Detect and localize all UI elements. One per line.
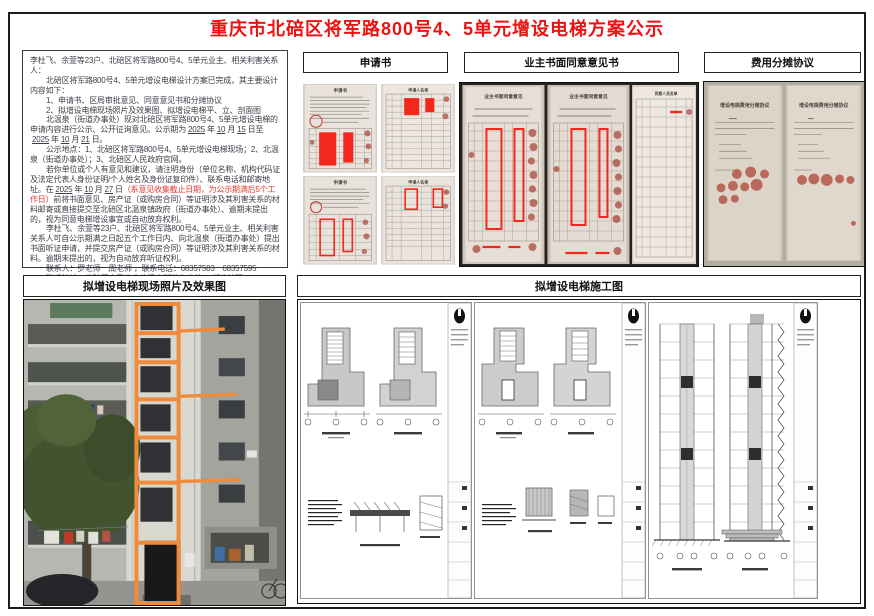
building-photo	[24, 300, 285, 605]
date-value: 2025	[188, 125, 205, 134]
notice-contact-person: 联系人：罗老师 周老师 ，联系电话：68357583 68357595	[30, 264, 280, 274]
date-value: 27	[105, 185, 114, 194]
date-value: 2025	[55, 185, 72, 194]
drawings-panel	[297, 299, 861, 604]
section-header-drawings: 拟增设电梯施工图	[297, 275, 861, 297]
drawing-sheet-plans-1	[300, 302, 472, 599]
doc-title-text: 申请书	[333, 179, 347, 186]
stairwell-windows	[140, 306, 172, 522]
right-building	[201, 300, 285, 593]
notice-paragraph-period: 北温泉（街道办事处）现对北碚区将军路800号4、5单元增设电梯的申请内容进行公示…	[30, 115, 280, 145]
redaction-box	[343, 132, 353, 162]
date-value: 21	[81, 135, 90, 144]
date-value: 10	[84, 185, 93, 194]
application-doc-photo: 申请书	[303, 176, 377, 265]
drawing-sheet-elevations	[648, 302, 818, 599]
notice-paragraph-locations: 公示地点：1、北碚区将军路800号4、5单元增设电梯现场；2、北温泉（街道办事处…	[30, 145, 280, 165]
notice-text-panel: 李杜飞、余萱等23户、北碚区将军路800号4、5单元业主、相关利害关系人： 北碚…	[22, 50, 288, 268]
doc-title-text: 增设电梯费用分摊协议	[720, 102, 769, 109]
date-value: 10	[217, 125, 226, 134]
site-photo-panel	[23, 299, 286, 606]
section-header-cost: 费用分摊协议	[704, 52, 861, 73]
section-header-site-photo: 拟增设电梯现场照片及效果图	[23, 275, 286, 297]
redaction-box	[425, 98, 434, 112]
entrance-doorway	[144, 541, 180, 601]
page-title: 重庆市北碚区将军路800号4、5单元增设电梯方案公示	[0, 15, 874, 41]
fingerprint	[686, 109, 692, 115]
application-photos-grid: 申请书	[303, 84, 455, 265]
title-block	[448, 303, 471, 598]
consent-list-photo: 同意人员名单	[632, 85, 696, 264]
notice-page: 重庆市北碚区将军路800号4、5单元增设电梯方案公示 李杜飞、余萱等23户、北碚…	[0, 0, 874, 616]
drawing-sheet-plans-2	[474, 302, 646, 599]
redaction-box	[404, 98, 419, 115]
applicant-list-photo: 申请人名单	[381, 176, 455, 265]
section-header-consent: 业主书面同意意见书	[464, 52, 679, 73]
notice-line-intro: 北碚区将军路800号4、5单元增设电梯设计方案已完成，其主要设计内容如下：	[30, 76, 280, 96]
doc-title-text: 同意人员名单	[655, 91, 678, 96]
notice-line-item1: 1、申请书、区局审批意见、同意意见书和分摊协议	[30, 96, 280, 106]
notice-line-item2: 2、拟增设电梯现场照片及效果图、拟增设电梯平、立、剖面图	[30, 106, 280, 116]
consent-doc-photo: 业主书面同意意见	[547, 85, 630, 264]
doc-title-text: 增设电梯费用分摊协议	[799, 102, 848, 109]
consent-photos-strip: 业主书面同意意见	[459, 82, 699, 267]
entrance-steps-detail	[722, 530, 782, 541]
cost-photos-strip: 增设电梯费用分摊协议 增设电梯费用分摊协议	[703, 81, 865, 267]
cost-doc-photo: 增设电梯费用分摊协议	[786, 85, 862, 261]
doc-title-text: 业主书面同意意见	[484, 93, 523, 100]
date-value: 2025	[32, 135, 49, 144]
doc-title-text: 申请人名单	[408, 87, 428, 93]
title-block	[622, 303, 645, 598]
title-block	[794, 303, 817, 598]
doc-title-text: 申请书	[333, 87, 347, 94]
application-doc-photo: 申请书	[303, 84, 377, 173]
doc-title-text: 申请人名单	[408, 179, 428, 185]
cost-doc-photo: 增设电梯费用分摊协议	[707, 85, 783, 261]
date-value: 15	[237, 125, 246, 134]
redaction-box	[319, 132, 336, 165]
notice-line-addressees: 李杜飞、余萱等23户、北碚区将军路800号4、5单元业主、相关利害关系人：	[30, 56, 280, 76]
section-header-application: 申请书	[303, 52, 448, 73]
applicant-list-photo: 申请人名单	[381, 84, 455, 173]
notice-on-wall	[185, 553, 195, 567]
notice-paragraph-feedback: 若你单位或个人有意见和建议，请注明身份（单位名称、机构代码证及法定代表人身份证明…	[30, 165, 280, 224]
consent-doc-photo: 业主书面同意意见	[462, 85, 545, 264]
doc-title-text: 业主书面同意意见	[569, 93, 608, 100]
date-value: 10	[61, 135, 70, 144]
notice-paragraph-hearing: 李杜飞、余萱等23户、北碚区将军路800号4、5单元业主、相关利害关系人可自公示…	[30, 224, 280, 264]
